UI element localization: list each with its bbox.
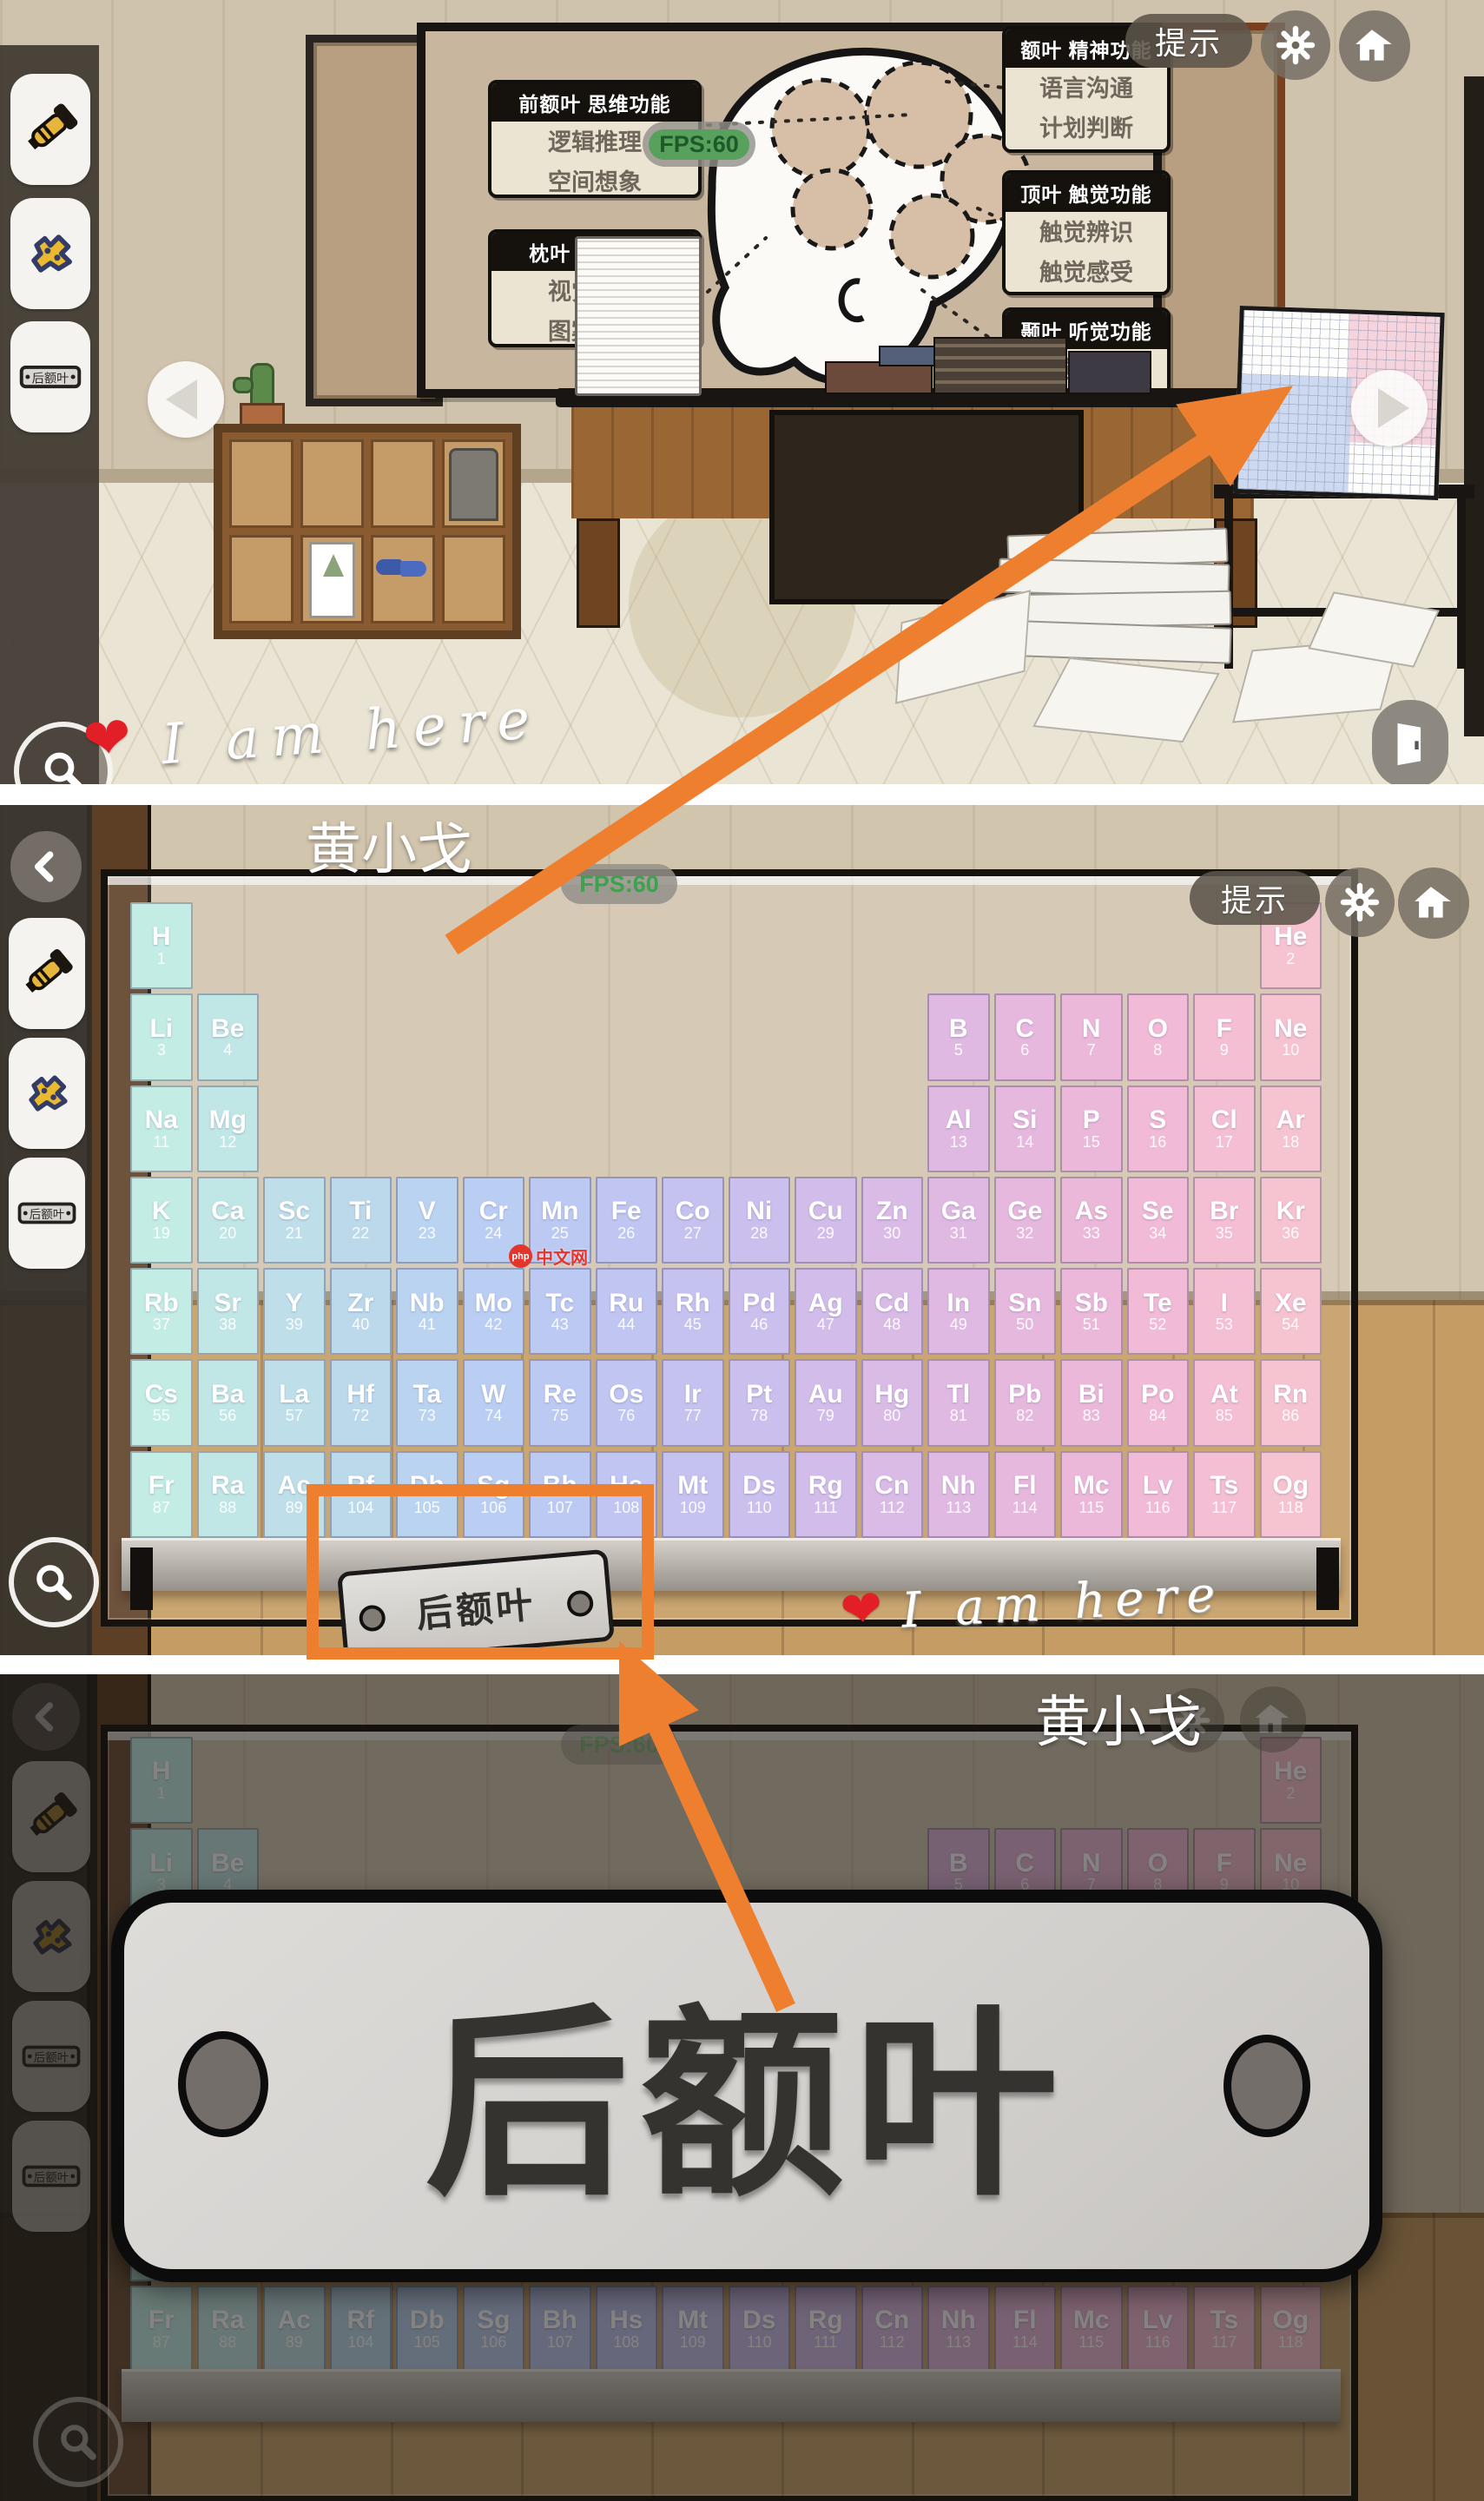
element-Cu[interactable]: Cu29 xyxy=(795,1177,857,1264)
element-symbol: Rn xyxy=(1273,1381,1308,1409)
element-symbol: Be xyxy=(211,1015,244,1043)
element-number: 18 xyxy=(1282,1134,1299,1152)
element-symbol: Na xyxy=(145,1106,178,1134)
inventory-slot-plate[interactable]: 后额叶 xyxy=(10,321,90,432)
hint-label: 提示 xyxy=(1221,875,1289,921)
element-number: 30 xyxy=(883,1225,900,1243)
element-Li[interactable]: Li3 xyxy=(130,993,193,1080)
element-Ga[interactable]: Ga31 xyxy=(927,1177,990,1264)
right-arrow-icon xyxy=(1378,388,1409,428)
home-button[interactable] xyxy=(1398,868,1469,939)
element-number: 107 xyxy=(547,1500,573,1517)
magnifier-icon xyxy=(32,1561,76,1604)
element-symbol: Mo xyxy=(475,1290,512,1317)
element-symbol: W xyxy=(481,1381,505,1409)
board-leg xyxy=(130,1547,153,1610)
element-number: 73 xyxy=(419,1408,436,1425)
element-Au[interactable]: Au79 xyxy=(795,1359,857,1446)
label-line: 语言沟通 xyxy=(1006,71,1167,108)
element-Ac[interactable]: Ac89 xyxy=(263,1451,326,1538)
element-number: 13 xyxy=(950,1134,967,1152)
element-number: 40 xyxy=(352,1316,369,1334)
nav-right-button[interactable] xyxy=(1351,370,1428,446)
element-symbol: Hf xyxy=(346,1381,374,1409)
element-symbol: Ni xyxy=(746,1198,772,1225)
element-W[interactable]: W74 xyxy=(463,1359,525,1446)
element-Zr[interactable]: Zr40 xyxy=(330,1268,392,1355)
hint-button[interactable]: 提示 xyxy=(1190,871,1320,925)
element-symbol: P xyxy=(1083,1106,1100,1134)
element-symbol: Xe xyxy=(1275,1290,1307,1317)
element-symbol: Hs xyxy=(610,1472,643,1500)
element-symbol: Br xyxy=(1210,1198,1238,1225)
element-number: 105 xyxy=(414,1500,440,1517)
element-Y[interactable]: Y39 xyxy=(263,1268,326,1355)
element-number: 42 xyxy=(485,1316,502,1334)
side-table-leg xyxy=(1457,498,1466,669)
element-Ag[interactable]: Ag47 xyxy=(795,1268,857,1355)
heart-marker: ❤ xyxy=(80,703,135,774)
element-number: 55 xyxy=(153,1408,170,1425)
panel-divider xyxy=(0,1655,1484,1674)
element-number: 21 xyxy=(286,1225,303,1243)
element-symbol: Li xyxy=(149,1015,173,1043)
tall-paper-stack[interactable] xyxy=(575,236,702,396)
element-symbol: Rh xyxy=(676,1290,710,1317)
element-number: 20 xyxy=(219,1225,236,1243)
element-Ta[interactable]: Ta73 xyxy=(396,1359,458,1446)
element-Tl[interactable]: Tl81 xyxy=(927,1359,990,1446)
name-plate-icon: 后额叶 xyxy=(13,1182,81,1244)
element-symbol: He xyxy=(1274,923,1307,951)
exit-door-button[interactable] xyxy=(1372,700,1448,786)
element-Se[interactable]: Se34 xyxy=(1127,1177,1190,1264)
element-symbol: Si xyxy=(1012,1106,1037,1134)
element-number: 116 xyxy=(1145,1500,1171,1517)
element-symbol: Fr xyxy=(148,1472,175,1500)
fps-value: FPS:60 xyxy=(579,871,659,898)
element-symbol: Re xyxy=(544,1381,577,1409)
element-number: 114 xyxy=(1012,1500,1038,1517)
nav-left-button[interactable] xyxy=(148,361,224,438)
element-symbol: Ts xyxy=(1210,1472,1238,1500)
element-number: 117 xyxy=(1211,1500,1237,1517)
element-symbol: Cr xyxy=(479,1198,508,1225)
label-title: 顶叶 触觉功能 xyxy=(1006,174,1167,212)
element-Db[interactable]: Db105 xyxy=(396,1451,458,1538)
element-symbol: Ag xyxy=(808,1290,843,1317)
element-Pb[interactable]: Pb82 xyxy=(994,1359,1057,1446)
svg-text:后额叶: 后额叶 xyxy=(30,1208,65,1221)
element-symbol: Ti xyxy=(349,1198,372,1225)
element-number: 49 xyxy=(950,1316,967,1334)
element-Rh[interactable]: Rh45 xyxy=(662,1268,724,1355)
element-number: 31 xyxy=(950,1225,967,1243)
element-As[interactable]: As33 xyxy=(1060,1177,1123,1264)
element-Ar[interactable]: Ar18 xyxy=(1260,1086,1322,1172)
player-name: 黄小戈 xyxy=(1035,1678,1202,1758)
element-number: 48 xyxy=(883,1316,900,1334)
element-Pt[interactable]: Pt78 xyxy=(729,1359,791,1446)
back-button[interactable] xyxy=(10,831,82,902)
element-symbol: Cn xyxy=(874,1472,909,1500)
element-number: 35 xyxy=(1216,1225,1233,1243)
element-Ts[interactable]: Ts117 xyxy=(1193,1451,1256,1538)
puzzle-piece-icon xyxy=(16,1062,78,1125)
element-Hs[interactable]: Hs108 xyxy=(596,1451,658,1538)
shelf-cube xyxy=(229,535,294,624)
element-number: 9 xyxy=(1220,1042,1229,1059)
shelf-cube xyxy=(442,535,506,624)
plate-closeup[interactable]: 后额叶 xyxy=(111,1890,1382,2282)
element-symbol: O xyxy=(1148,1015,1168,1043)
label-title: 前额叶 思维功能 xyxy=(491,83,698,122)
element-Cs[interactable]: Cs55 xyxy=(130,1359,193,1446)
element-Sr[interactable]: Sr38 xyxy=(197,1268,260,1355)
element-number: 32 xyxy=(1016,1225,1033,1243)
element-Be[interactable]: Be4 xyxy=(197,993,260,1080)
shelf-cube xyxy=(229,439,294,528)
element-Ca[interactable]: Ca20 xyxy=(197,1177,260,1264)
element-number: 88 xyxy=(219,1500,236,1517)
element-symbol: Tc xyxy=(545,1290,574,1317)
shelf-unit[interactable] xyxy=(214,424,521,639)
element-number: 53 xyxy=(1216,1316,1233,1334)
element-symbol: As xyxy=(1075,1198,1108,1225)
element-number: 12 xyxy=(219,1134,236,1152)
label-line: 触觉辨识 xyxy=(1006,215,1167,252)
element-symbol: Sc xyxy=(278,1198,310,1225)
element-N[interactable]: N7 xyxy=(1060,993,1123,1080)
element-Al[interactable]: Al13 xyxy=(927,1086,990,1172)
element-Ge[interactable]: Ge32 xyxy=(994,1177,1057,1264)
magnifier-icon xyxy=(40,748,87,786)
element-Rg[interactable]: Rg111 xyxy=(795,1451,857,1538)
element-number: 110 xyxy=(747,1500,772,1517)
element-number: 106 xyxy=(480,1500,506,1517)
element-Mg[interactable]: Mg12 xyxy=(197,1086,260,1172)
element-Ds[interactable]: Ds110 xyxy=(729,1451,791,1538)
element-symbol: N xyxy=(1082,1015,1101,1043)
element-Sb[interactable]: Sb51 xyxy=(1060,1268,1123,1355)
element-number: 6 xyxy=(1020,1042,1029,1059)
element-number: 7 xyxy=(1087,1042,1096,1059)
element-number: 19 xyxy=(153,1225,170,1243)
element-number: 111 xyxy=(814,1500,837,1517)
element-Ni[interactable]: Ni28 xyxy=(729,1177,791,1264)
settings-button[interactable] xyxy=(1261,10,1330,80)
element-symbol: La xyxy=(279,1381,309,1409)
panel-plate-closeup: H1He2Li3Be4B5C6N7O8F9Ne10Na11Mg12Al13Si1… xyxy=(0,1674,1484,2501)
element-symbol: Cl xyxy=(1211,1106,1237,1134)
element-Mo[interactable]: Mo42 xyxy=(463,1268,525,1355)
label-box-parietal: 顶叶 触觉功能 触觉辨识 触觉感受 xyxy=(1002,170,1171,295)
element-symbol: S xyxy=(1149,1106,1166,1134)
element-number: 85 xyxy=(1216,1408,1233,1425)
element-B[interactable]: B5 xyxy=(927,993,990,1080)
inventory-slot-puzzle[interactable] xyxy=(9,1038,85,1149)
element-Ti[interactable]: Ti22 xyxy=(330,1177,392,1264)
inventory-sidebar: 后额叶 xyxy=(0,805,92,1657)
element-H[interactable]: H1 xyxy=(130,902,193,989)
element-number: 11 xyxy=(153,1134,169,1152)
element-Bi[interactable]: Bi83 xyxy=(1060,1359,1123,1446)
element-Zn[interactable]: Zn30 xyxy=(861,1177,924,1264)
element-Sc[interactable]: Sc21 xyxy=(263,1177,326,1264)
element-Fe[interactable]: Fe26 xyxy=(596,1177,658,1264)
shelf-cube xyxy=(300,439,365,528)
label-line: 触觉感受 xyxy=(1006,255,1167,292)
element-symbol: Ds xyxy=(742,1472,775,1500)
watermark-logo: php xyxy=(509,1244,532,1268)
element-symbol: I xyxy=(1221,1290,1228,1317)
element-symbol: B xyxy=(949,1015,968,1043)
walkthrough-page: 前额叶 思维功能 逻辑推理 空间想象 枕叶 视觉功能 视觉辨识 图案理解 额叶 … xyxy=(0,0,1484,2501)
element-number: 79 xyxy=(817,1408,834,1425)
element-symbol: Sr xyxy=(214,1290,241,1317)
element-La[interactable]: La57 xyxy=(263,1359,326,1446)
hint-label: 提示 xyxy=(1155,18,1223,63)
element-number: 36 xyxy=(1282,1225,1299,1243)
element-symbol: Pb xyxy=(1008,1381,1041,1409)
element-number: 54 xyxy=(1282,1316,1299,1334)
element-F[interactable]: F9 xyxy=(1193,993,1256,1080)
element-symbol: Pd xyxy=(742,1290,775,1317)
element-symbol: Sn xyxy=(1008,1290,1041,1317)
element-Br[interactable]: Br35 xyxy=(1193,1177,1256,1264)
element-number: 3 xyxy=(157,1042,166,1059)
panel-divider xyxy=(0,784,1484,805)
element-number: 108 xyxy=(613,1500,639,1517)
element-Ra[interactable]: Ra88 xyxy=(197,1451,260,1538)
element-Lv[interactable]: Lv116 xyxy=(1127,1451,1190,1538)
element-symbol: In xyxy=(946,1290,970,1317)
element-number: 43 xyxy=(551,1316,569,1334)
element-symbol: Kr xyxy=(1276,1198,1305,1225)
element-Og[interactable]: Og118 xyxy=(1260,1451,1322,1538)
element-symbol: Mg xyxy=(209,1106,247,1134)
element-symbol: Au xyxy=(808,1381,843,1409)
element-number: 39 xyxy=(286,1316,303,1334)
element-number: 14 xyxy=(1016,1134,1033,1152)
cactus xyxy=(228,363,292,432)
element-symbol: Nb xyxy=(410,1290,445,1317)
element-Nb[interactable]: Nb41 xyxy=(396,1268,458,1355)
element-S[interactable]: S16 xyxy=(1127,1086,1190,1172)
player-name: 黄小戈 xyxy=(306,805,472,885)
element-Co[interactable]: Co27 xyxy=(662,1177,724,1264)
fps-counter: FPS:60 xyxy=(643,122,755,167)
element-symbol: Se xyxy=(1142,1198,1174,1225)
element-number: 5 xyxy=(954,1042,963,1059)
element-number: 26 xyxy=(617,1225,635,1243)
element-symbol: Te xyxy=(1144,1290,1172,1317)
element-number: 23 xyxy=(419,1225,436,1243)
plate-hole xyxy=(1223,2035,1310,2137)
flashlight-icon xyxy=(17,96,83,162)
home-button[interactable] xyxy=(1339,10,1410,82)
element-symbol: Rf xyxy=(346,1472,374,1500)
element-O[interactable]: O8 xyxy=(1127,993,1190,1080)
fps-value: FPS:60 xyxy=(649,129,749,160)
element-number: 80 xyxy=(883,1408,900,1425)
inventory-slot-puzzle[interactable] xyxy=(10,198,90,309)
element-number: 2 xyxy=(1286,951,1295,968)
element-number: 113 xyxy=(946,1500,971,1517)
element-I[interactable]: I53 xyxy=(1193,1268,1256,1355)
shelf-cube-picture xyxy=(300,535,365,624)
element-symbol: Ne xyxy=(1274,1015,1307,1043)
element-Kr[interactable]: Kr36 xyxy=(1260,1177,1322,1264)
element-P[interactable]: P15 xyxy=(1060,1086,1123,1172)
element-At[interactable]: At85 xyxy=(1193,1359,1256,1446)
inventory-slot-plate[interactable]: 后额叶 xyxy=(9,1158,85,1269)
element-Te[interactable]: Te52 xyxy=(1127,1268,1190,1355)
element-Rn[interactable]: Rn86 xyxy=(1260,1359,1322,1446)
plate-text: 后额叶 xyxy=(425,1938,1069,2234)
element-Ir[interactable]: Ir77 xyxy=(662,1359,724,1446)
element-Re[interactable]: Re75 xyxy=(529,1359,591,1446)
element-number: 75 xyxy=(551,1408,569,1425)
element-Os[interactable]: Os76 xyxy=(596,1359,658,1446)
plate-hole xyxy=(358,1604,386,1633)
element-K[interactable]: K19 xyxy=(130,1177,193,1264)
element-symbol: Os xyxy=(609,1381,643,1409)
element-symbol: Fl xyxy=(1013,1472,1037,1500)
element-number: 4 xyxy=(223,1042,232,1059)
back-chevron-icon xyxy=(27,848,65,886)
label-line: 计划判断 xyxy=(1006,111,1167,148)
element-number: 52 xyxy=(1149,1316,1166,1334)
element-number: 51 xyxy=(1083,1316,1100,1334)
element-symbol: Ta xyxy=(412,1381,441,1409)
element-Cd[interactable]: Cd48 xyxy=(861,1268,924,1355)
element-Fl[interactable]: Fl114 xyxy=(994,1451,1057,1538)
element-symbol: Mn xyxy=(541,1198,578,1225)
flashlight-icon xyxy=(16,942,78,1005)
element-symbol: F xyxy=(1217,1015,1232,1043)
element-Bh[interactable]: Bh107 xyxy=(529,1451,591,1538)
book-stack xyxy=(1068,351,1151,394)
element-number: 81 xyxy=(950,1408,967,1425)
settings-button[interactable] xyxy=(1325,868,1395,937)
element-symbol: Sg xyxy=(477,1472,510,1500)
element-Ru[interactable]: Ru44 xyxy=(596,1268,658,1355)
element-Mc[interactable]: Mc115 xyxy=(1060,1451,1123,1538)
element-symbol: Cs xyxy=(145,1381,178,1409)
plate-hole xyxy=(566,1589,595,1618)
element-Ba[interactable]: Ba56 xyxy=(197,1359,260,1446)
element-Hf[interactable]: Hf72 xyxy=(330,1359,392,1446)
element-symbol: Cu xyxy=(808,1198,843,1225)
element-number: 1 xyxy=(157,951,166,968)
element-Nh[interactable]: Nh113 xyxy=(927,1451,990,1538)
inventory-slot-flashlight[interactable] xyxy=(9,918,85,1029)
element-number: 29 xyxy=(817,1225,834,1243)
element-number: 78 xyxy=(750,1408,768,1425)
inventory-slot-flashlight[interactable] xyxy=(10,74,90,185)
watermark-text: 中文网 xyxy=(536,1244,588,1269)
heart-marker: ❤ xyxy=(838,1578,886,1641)
element-number: 33 xyxy=(1083,1225,1100,1243)
element-symbol: Rb xyxy=(144,1290,179,1317)
element-number: 72 xyxy=(352,1408,369,1425)
element-number: 15 xyxy=(1083,1134,1100,1152)
element-symbol: Mt xyxy=(677,1472,708,1500)
element-number: 38 xyxy=(219,1316,236,1334)
name-plate-icon: 后额叶 xyxy=(16,344,85,410)
element-Fr[interactable]: Fr87 xyxy=(130,1451,193,1538)
element-Hg[interactable]: Hg80 xyxy=(861,1359,924,1446)
shelf-cube-shoes xyxy=(371,535,435,624)
element-symbol: Po xyxy=(1141,1381,1174,1409)
element-symbol: Og xyxy=(1272,1472,1309,1500)
gear-icon xyxy=(1275,24,1316,66)
element-symbol: H xyxy=(152,923,171,951)
book-stack xyxy=(933,337,1067,394)
element-number: 47 xyxy=(817,1316,834,1334)
element-number: 118 xyxy=(1278,1500,1303,1517)
element-symbol: Ca xyxy=(211,1198,244,1225)
element-symbol: Y xyxy=(286,1290,303,1317)
element-symbol: Tl xyxy=(946,1381,970,1409)
element-Rb[interactable]: Rb37 xyxy=(130,1268,193,1355)
element-number: 50 xyxy=(1016,1316,1033,1334)
element-Cl[interactable]: Cl17 xyxy=(1193,1086,1256,1172)
element-symbol: Fe xyxy=(611,1198,642,1225)
element-Sg[interactable]: Sg106 xyxy=(463,1451,525,1538)
element-symbol: Ba xyxy=(211,1381,244,1409)
element-Pd[interactable]: Pd46 xyxy=(729,1268,791,1355)
element-number: 34 xyxy=(1149,1225,1166,1243)
element-number: 44 xyxy=(617,1316,635,1334)
hint-button[interactable]: 提示 xyxy=(1125,14,1252,68)
element-V[interactable]: V23 xyxy=(396,1177,458,1264)
element-Si[interactable]: Si14 xyxy=(994,1086,1057,1172)
element-Xe[interactable]: Xe54 xyxy=(1260,1268,1322,1355)
element-number: 17 xyxy=(1216,1134,1233,1152)
element-C[interactable]: C6 xyxy=(994,993,1057,1080)
element-number: 82 xyxy=(1016,1408,1033,1425)
shelf-cube xyxy=(371,439,435,528)
element-Po[interactable]: Po84 xyxy=(1127,1359,1190,1446)
element-number: 115 xyxy=(1078,1500,1104,1517)
magnifier-button[interactable] xyxy=(9,1537,99,1627)
home-icon xyxy=(1412,881,1455,925)
element-Tc[interactable]: Tc43 xyxy=(529,1268,591,1355)
element-number: 86 xyxy=(1282,1408,1299,1425)
element-Na[interactable]: Na11 xyxy=(130,1086,193,1172)
element-Ne[interactable]: Ne10 xyxy=(1260,993,1322,1080)
plate-hole xyxy=(178,2031,268,2137)
element-Mt[interactable]: Mt109 xyxy=(662,1451,724,1538)
element-symbol: Cd xyxy=(874,1290,909,1317)
element-Cn[interactable]: Cn112 xyxy=(861,1451,924,1538)
periodic-table[interactable]: H1He2Li3Be4B5C6N7O8F9Ne10Na11Mg12Al13Si1… xyxy=(130,902,1322,1538)
element-Sn[interactable]: Sn50 xyxy=(994,1268,1057,1355)
element-number: 83 xyxy=(1083,1408,1100,1425)
element-number: 76 xyxy=(617,1408,635,1425)
element-symbol: Ar xyxy=(1276,1106,1305,1134)
element-symbol: Lv xyxy=(1143,1472,1173,1500)
plate-text: 后额叶 xyxy=(414,1575,538,1639)
element-In[interactable]: In49 xyxy=(927,1268,990,1355)
puzzle-piece-icon xyxy=(17,221,83,287)
element-symbol: Pt xyxy=(746,1381,772,1409)
element-number: 27 xyxy=(684,1225,702,1243)
element-Rf[interactable]: Rf104 xyxy=(330,1451,392,1538)
element-symbol: Ac xyxy=(278,1472,311,1500)
